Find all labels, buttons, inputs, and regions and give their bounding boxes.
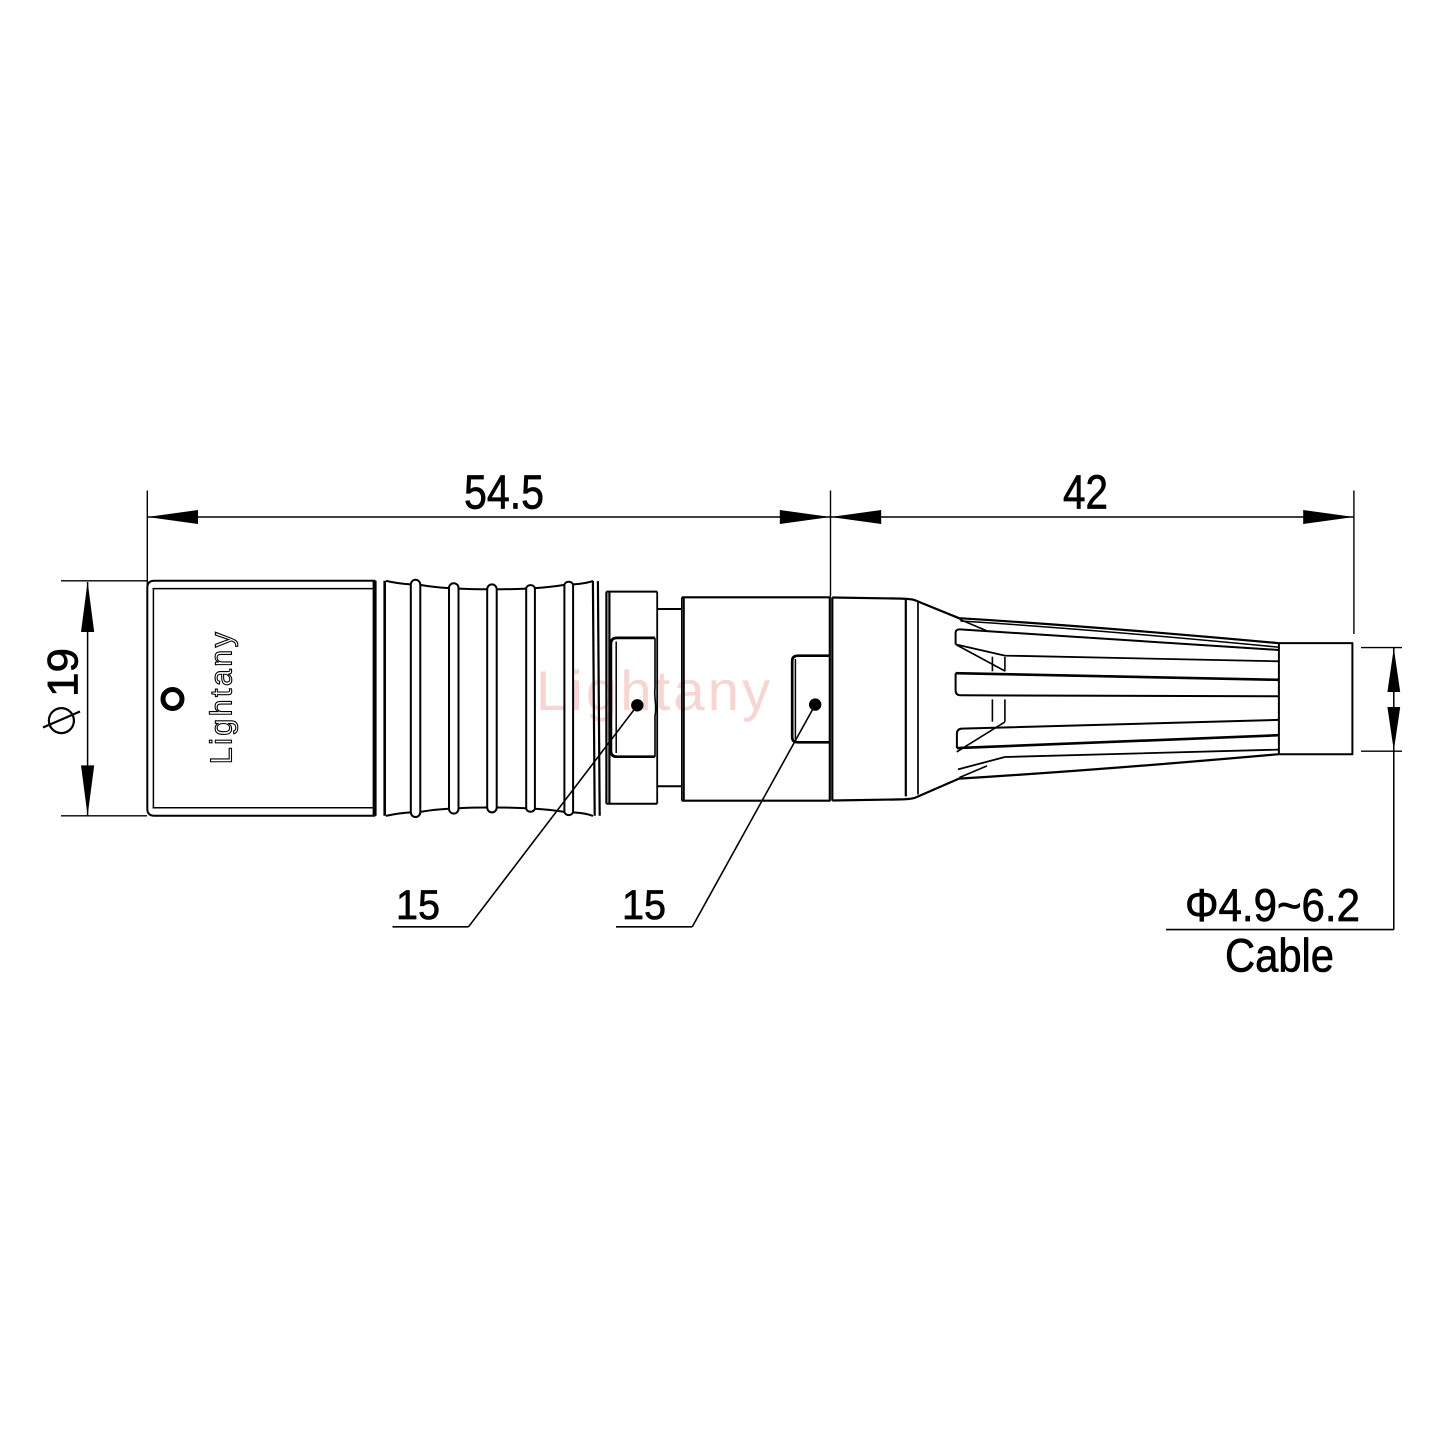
svg-text:Φ4.9~6.2: Φ4.9~6.2 [1185, 879, 1360, 931]
svg-text:Cable: Cable [1225, 929, 1334, 982]
svg-text:15: 15 [622, 881, 666, 928]
svg-text:15: 15 [396, 881, 440, 928]
svg-text:19: 19 [40, 648, 88, 697]
svg-text:42: 42 [1063, 467, 1108, 520]
svg-text:Lightany: Lightany [205, 630, 239, 765]
svg-text:54.5: 54.5 [464, 467, 544, 520]
